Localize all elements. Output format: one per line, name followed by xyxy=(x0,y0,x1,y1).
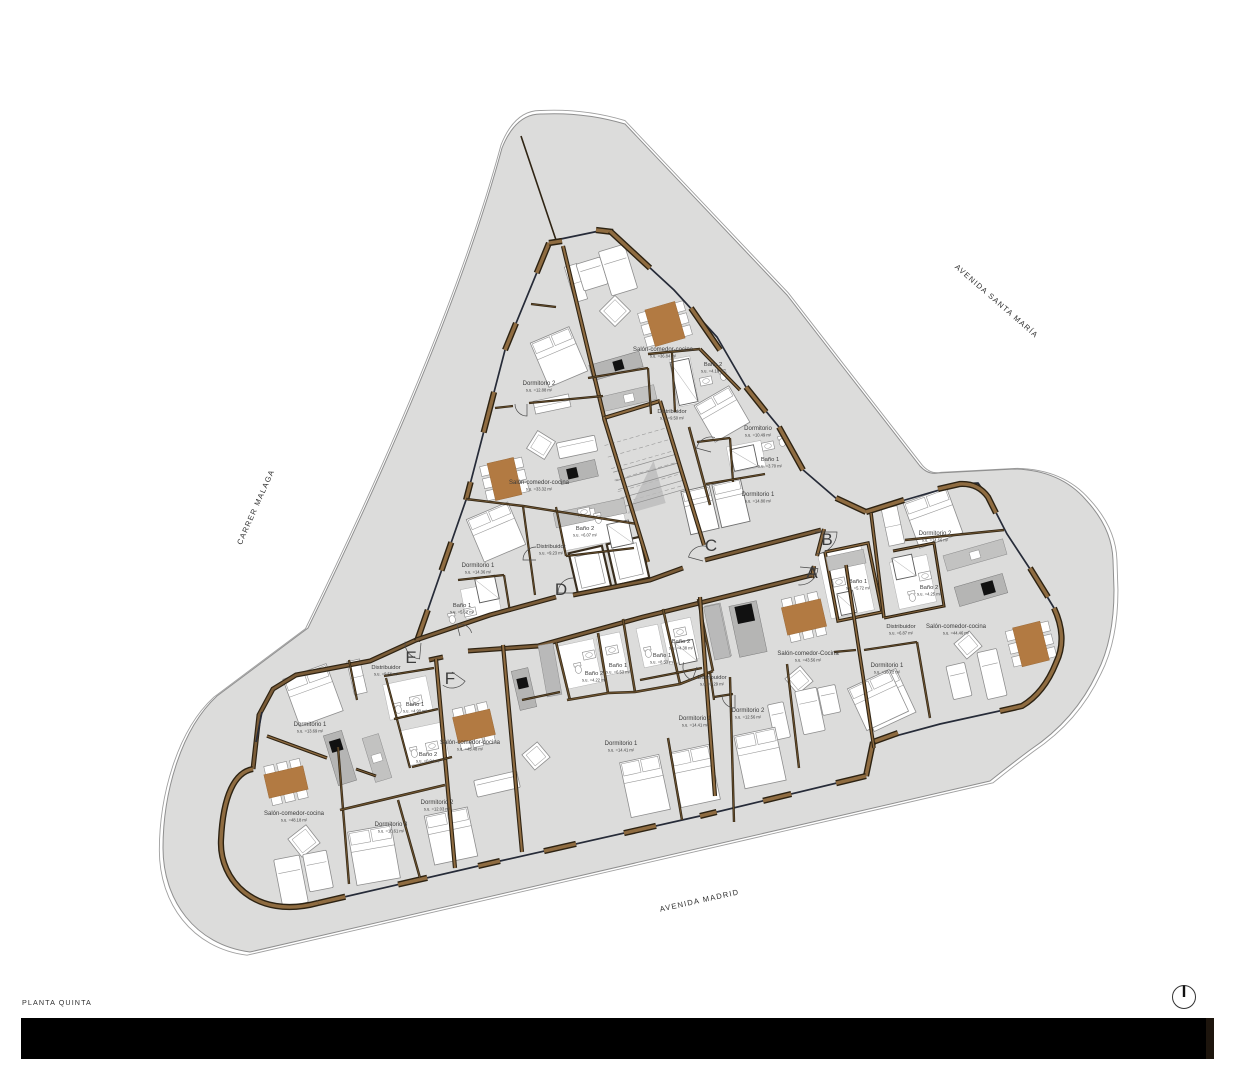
svg-text:Salón-comedor-cocina: Salón-comedor-cocina xyxy=(509,480,570,486)
svg-text:Baño 2: Baño 2 xyxy=(585,671,603,677)
svg-text:Baño 1: Baño 1 xyxy=(761,457,779,463)
svg-text:s.u. =12.88 m²: s.u. =12.88 m² xyxy=(526,387,553,392)
svg-text:s.u. =4.25 m²: s.u. =4.25 m² xyxy=(917,591,942,596)
svg-text:s.u. =5.62 m²: s.u. =5.62 m² xyxy=(450,609,475,614)
svg-text:s.u. =14.66 m²: s.u. =14.66 m² xyxy=(922,537,949,542)
svg-text:s.u. =10.61 m²: s.u. =10.61 m² xyxy=(378,828,405,833)
svg-text:B: B xyxy=(821,530,832,549)
svg-text:A: A xyxy=(806,563,818,582)
svg-text:Dormitorio 1: Dormitorio 1 xyxy=(871,663,904,669)
svg-text:Baño 1: Baño 1 xyxy=(406,702,424,708)
svg-text:Salón-comedor-cocina: Salón-comedor-cocina xyxy=(926,624,987,630)
svg-text:s.u. =12.56 m²: s.u. =12.56 m² xyxy=(735,714,762,719)
svg-text:PLANTA QUINTA: PLANTA QUINTA xyxy=(22,998,92,1007)
svg-text:s.u. =12.03 m²: s.u. =12.03 m² xyxy=(424,806,451,811)
svg-text:s.u. =43.56 m²: s.u. =43.56 m² xyxy=(795,657,822,662)
svg-text:Baño 2: Baño 2 xyxy=(419,752,437,758)
svg-text:Distribuidor: Distribuidor xyxy=(371,665,400,671)
svg-text:s.u. =15.72 m²: s.u. =15.72 m² xyxy=(874,669,901,674)
svg-text:D: D xyxy=(555,580,567,599)
svg-text:Dormitorio 1: Dormitorio 1 xyxy=(462,563,495,569)
svg-text:s.u. =4.22 m²: s.u. =4.22 m² xyxy=(582,677,607,682)
svg-text:s.u. =14.41 m²: s.u. =14.41 m² xyxy=(608,747,635,752)
svg-text:Dormitorio 2: Dormitorio 2 xyxy=(919,531,952,537)
svg-text:Salón-comedor-Cocina: Salón-comedor-Cocina xyxy=(777,651,839,657)
svg-text:Distribuidor: Distribuidor xyxy=(886,624,915,630)
svg-text:s.u. =6.87 m²: s.u. =6.87 m² xyxy=(889,630,914,635)
svg-text:s.u. =45.48 m²: s.u. =45.48 m² xyxy=(457,746,484,751)
svg-text:s.u. =6.07 m²: s.u. =6.07 m² xyxy=(573,532,598,537)
svg-text:Dormitorio 1: Dormitorio 1 xyxy=(679,716,712,722)
svg-text:s.u. =9.23 m²: s.u. =9.23 m² xyxy=(539,550,564,555)
svg-text:Dormitorio 1: Dormitorio 1 xyxy=(605,741,638,747)
svg-text:s.u. =2.29 m²: s.u. =2.29 m² xyxy=(700,681,725,686)
svg-text:Baño 2: Baño 2 xyxy=(920,585,938,591)
svg-text:s.u. =9.56 m²: s.u. =9.56 m² xyxy=(374,671,399,676)
svg-text:s.u. =4.90 m²: s.u. =4.90 m² xyxy=(403,708,428,713)
svg-text:s.u. =48.18 m²: s.u. =48.18 m² xyxy=(281,817,308,822)
svg-text:Baño 1: Baño 1 xyxy=(849,579,867,585)
svg-text:s.u. =13.69 m²: s.u. =13.69 m² xyxy=(297,728,324,733)
svg-text:Salón-comedor-cocina: Salón-comedor-cocina xyxy=(264,811,325,817)
svg-text:Dormitorio 3: Dormitorio 3 xyxy=(375,822,408,828)
svg-text:s.u. =9.50 m²: s.u. =9.50 m² xyxy=(660,415,685,420)
svg-text:Dormitorio 2: Dormitorio 2 xyxy=(732,708,765,714)
svg-text:C: C xyxy=(705,536,717,555)
svg-text:Dormitorio 2: Dormitorio 2 xyxy=(523,381,556,387)
svg-text:Dormitorio: Dormitorio xyxy=(744,426,772,432)
svg-text:s.u. =10.49 m²: s.u. =10.49 m² xyxy=(745,432,772,437)
svg-text:Baño 2: Baño 2 xyxy=(672,639,690,645)
svg-text:s.u. =3.70 m²: s.u. =3.70 m² xyxy=(758,463,783,468)
svg-text:s.u. =36.84 m²: s.u. =36.84 m² xyxy=(650,353,677,358)
svg-text:s.u. =33.32 m²: s.u. =33.32 m² xyxy=(526,486,553,491)
svg-text:s.u. =6.53 m²: s.u. =6.53 m² xyxy=(606,669,631,674)
svg-text:Baño 1: Baño 1 xyxy=(453,603,471,609)
svg-text:s.u. =44.46 m²: s.u. =44.46 m² xyxy=(943,630,970,635)
svg-text:Distribuidor: Distribuidor xyxy=(657,409,686,415)
svg-text:s.u. =5.72 m²: s.u. =5.72 m² xyxy=(846,585,871,590)
svg-text:F: F xyxy=(445,669,455,688)
svg-text:Distribuidor: Distribuidor xyxy=(697,675,726,681)
svg-text:Salón-comedor-cocina: Salón-comedor-cocina xyxy=(440,740,501,746)
svg-text:Distribuidor: Distribuidor xyxy=(536,544,565,550)
svg-text:s.u. =14.41 m²: s.u. =14.41 m² xyxy=(682,722,709,727)
svg-text:Dormitorio 2: Dormitorio 2 xyxy=(421,800,454,806)
svg-text:s.u. =14.80 m²: s.u. =14.80 m² xyxy=(745,498,772,503)
svg-text:s.u. =0.94 m²: s.u. =0.94 m² xyxy=(416,758,441,763)
svg-text:s.u. =4.38 m²: s.u. =4.38 m² xyxy=(669,645,694,650)
svg-text:Baño 2: Baño 2 xyxy=(576,526,594,532)
svg-text:Dormitorio 1: Dormitorio 1 xyxy=(742,492,775,498)
svg-text:Baño 1: Baño 1 xyxy=(653,653,671,659)
svg-text:Dormitorio 1: Dormitorio 1 xyxy=(294,722,327,728)
svg-text:Baño 2: Baño 2 xyxy=(704,362,722,368)
svg-text:Salón-comedor-cocina: Salón-comedor-cocina xyxy=(633,347,694,353)
svg-text:E: E xyxy=(405,648,416,667)
svg-text:s.u. =14.36 m²: s.u. =14.36 m² xyxy=(465,569,492,574)
svg-text:s.u. =8.53 m²: s.u. =8.53 m² xyxy=(650,659,675,664)
svg-text:s.u. =4.18 m²: s.u. =4.18 m² xyxy=(701,368,726,373)
svg-text:Baño 1: Baño 1 xyxy=(609,663,627,669)
